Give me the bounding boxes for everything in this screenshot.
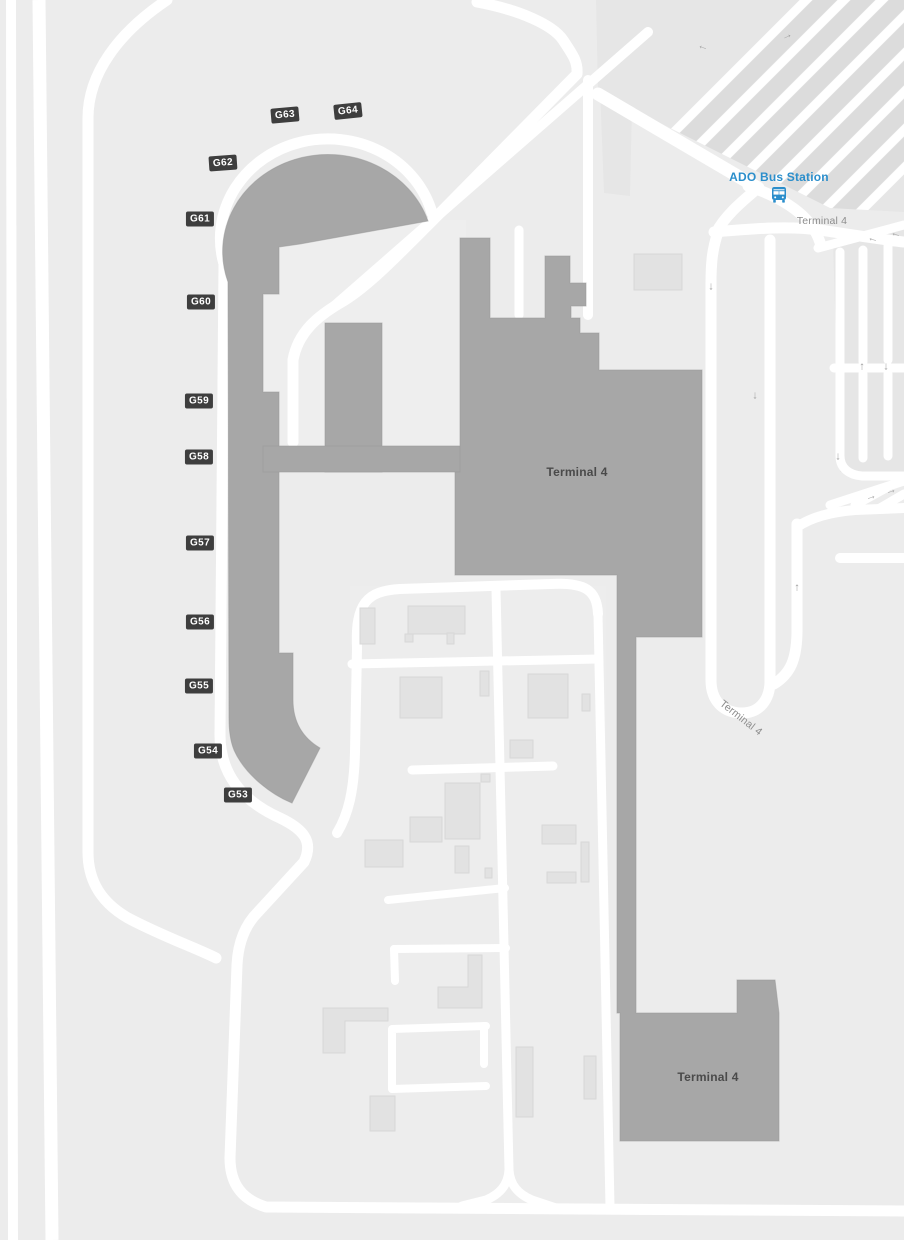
gate-badge-g59[interactable]: G59 [185,394,213,409]
gate-badge-g60[interactable]: G60 [187,295,215,310]
gate-badge-g55[interactable]: G55 [185,679,213,694]
gate-badge-g58[interactable]: G58 [185,450,213,465]
gate-badge-g63[interactable]: G63 [270,106,299,123]
gate-badge-g56[interactable]: G56 [186,615,214,630]
gate-badge-g61[interactable]: G61 [186,212,214,227]
terminal-label-south: Terminal 4 [677,1070,738,1084]
gate-badge-g64[interactable]: G64 [333,102,363,120]
bus-icon[interactable] [770,187,788,204]
terminal-label-main: Terminal 4 [546,465,607,479]
map-canvas[interactable]: Terminal 4Terminal 4Terminal 4Terminal 4… [0,0,904,1240]
road-label-terminal4-top: Terminal 4 [797,215,847,227]
ado-bus-station-label[interactable]: ADO Bus Station [729,170,829,184]
map-graphics [0,0,904,1240]
gate-badge-g57[interactable]: G57 [186,536,214,551]
gate-badge-g53[interactable]: G53 [224,788,252,803]
gate-badge-g62[interactable]: G62 [208,155,237,172]
gate-badge-g54[interactable]: G54 [194,744,222,759]
